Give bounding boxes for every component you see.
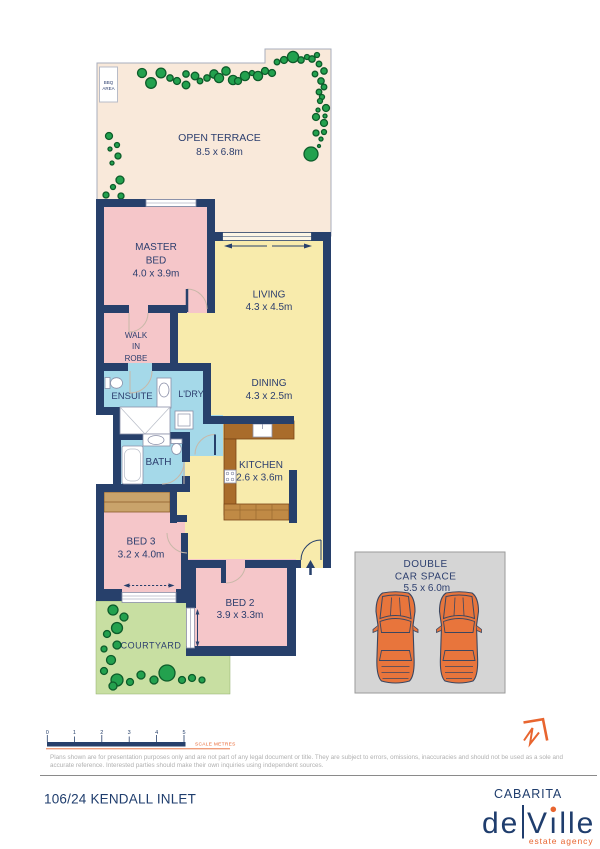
svg-text:2.6 x 3.6m: 2.6 x 3.6m xyxy=(236,473,283,484)
svg-text:LIVING: LIVING xyxy=(253,290,286,301)
svg-text:4: 4 xyxy=(155,730,158,736)
svg-text:2: 2 xyxy=(100,730,103,736)
svg-text:BATH: BATH xyxy=(146,457,172,468)
svg-text:CAR SPACE: CAR SPACE xyxy=(395,572,457,583)
svg-text:de: de xyxy=(482,807,519,840)
svg-text:CABARITA: CABARITA xyxy=(494,787,562,801)
svg-text:Plans shown are for presentati: Plans shown are for presentation purpose… xyxy=(50,754,564,761)
svg-text:DINING: DINING xyxy=(252,378,287,389)
svg-text:BED: BED xyxy=(146,256,167,267)
svg-text:DOUBLE: DOUBLE xyxy=(404,559,448,570)
svg-text:5: 5 xyxy=(182,730,185,736)
svg-text:5.5 x 6.0m: 5.5 x 6.0m xyxy=(403,583,450,594)
svg-text:4.3 x 4.5m: 4.3 x 4.5m xyxy=(246,302,293,313)
svg-text:3.2 x 4.0m: 3.2 x 4.0m xyxy=(118,550,165,561)
svg-text:BED 2: BED 2 xyxy=(226,598,255,609)
svg-text:AREA: AREA xyxy=(102,86,114,91)
svg-text:1: 1 xyxy=(73,730,76,736)
svg-text:KITCHEN: KITCHEN xyxy=(239,460,283,471)
svg-text:estate agency: estate agency xyxy=(529,836,594,846)
svg-text:L'DRY: L'DRY xyxy=(178,389,204,399)
svg-text:WALK: WALK xyxy=(125,331,148,340)
svg-text:IN: IN xyxy=(132,342,140,351)
svg-text:4.0 x 3.9m: 4.0 x 3.9m xyxy=(133,269,180,280)
svg-text:BBQ: BBQ xyxy=(104,80,114,85)
svg-text:106/24 KENDALL INLET: 106/24 KENDALL INLET xyxy=(44,792,196,807)
svg-text:MASTER: MASTER xyxy=(135,242,177,253)
svg-text:SCALE METRES: SCALE METRES xyxy=(195,742,236,748)
svg-text:COURTYARD: COURTYARD xyxy=(121,641,182,651)
svg-text:BED 3: BED 3 xyxy=(127,537,156,548)
svg-text:3.9 x 3.3m: 3.9 x 3.3m xyxy=(217,610,264,621)
svg-text:8.5 x 6.8m: 8.5 x 6.8m xyxy=(196,147,243,158)
svg-text:ROBE: ROBE xyxy=(125,354,148,363)
svg-text:accurate reference. Interested: accurate reference. Interested parties s… xyxy=(50,762,324,769)
svg-text:0: 0 xyxy=(46,730,49,736)
svg-text:4.3 x 2.5m: 4.3 x 2.5m xyxy=(246,391,293,402)
svg-text:OPEN TERRACE: OPEN TERRACE xyxy=(178,132,261,144)
svg-text:3: 3 xyxy=(128,730,131,736)
